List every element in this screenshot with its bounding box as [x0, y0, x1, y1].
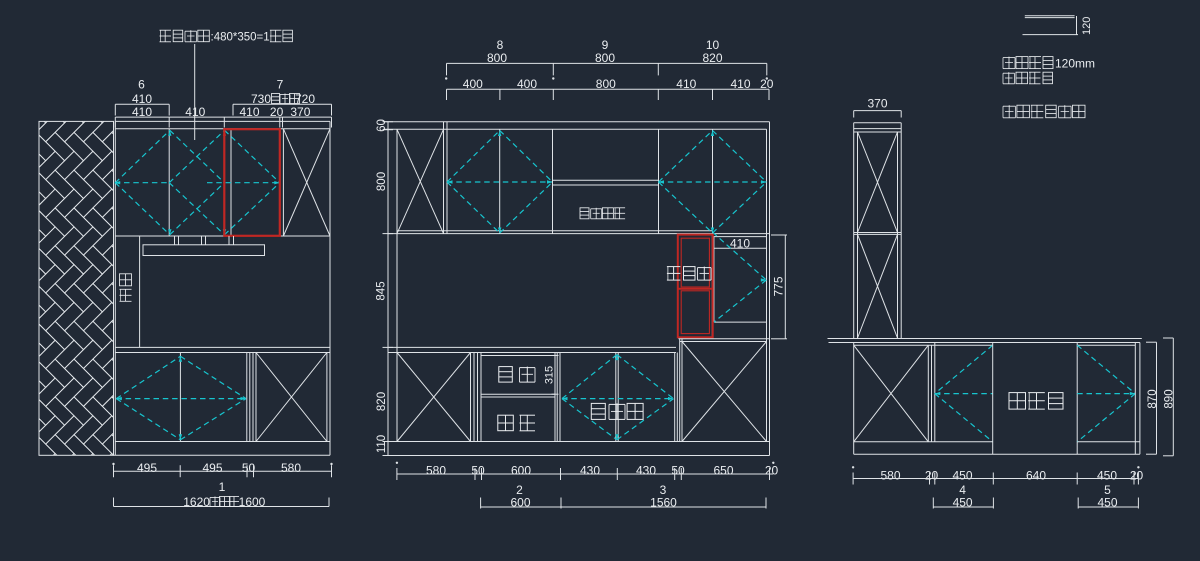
svg-text:600: 600: [511, 463, 531, 477]
svg-text:450: 450: [953, 495, 973, 509]
svg-text:410: 410: [730, 236, 750, 250]
svg-text:1: 1: [219, 480, 226, 494]
svg-text:1620: 1620: [183, 495, 210, 509]
svg-text:800: 800: [487, 51, 507, 65]
svg-text:730: 730: [251, 92, 271, 106]
svg-text:20: 20: [925, 468, 939, 482]
svg-text:450: 450: [1097, 468, 1117, 482]
svg-text:800: 800: [376, 172, 388, 191]
svg-text:450: 450: [1097, 495, 1117, 509]
svg-text:110: 110: [376, 435, 388, 453]
svg-text:775: 775: [771, 276, 785, 296]
svg-text:1600: 1600: [239, 495, 266, 509]
svg-text:410: 410: [132, 92, 152, 106]
svg-text:430: 430: [636, 463, 656, 477]
svg-text:20: 20: [765, 463, 779, 477]
svg-text:495: 495: [202, 461, 222, 475]
svg-text:650: 650: [713, 463, 733, 477]
svg-text:820: 820: [702, 51, 722, 65]
svg-text:20: 20: [1130, 468, 1144, 482]
svg-text:1560: 1560: [650, 495, 677, 509]
svg-text:10: 10: [706, 38, 720, 52]
svg-text:8: 8: [497, 38, 504, 52]
svg-text:315: 315: [544, 366, 556, 384]
svg-text:7: 7: [277, 77, 284, 91]
svg-text:580: 580: [426, 463, 446, 477]
svg-text:450: 450: [952, 468, 972, 482]
svg-text:60: 60: [376, 119, 388, 132]
svg-text:845: 845: [376, 281, 388, 300]
svg-text:720: 720: [295, 92, 315, 106]
svg-text:495: 495: [137, 461, 157, 475]
svg-text:9: 9: [602, 38, 609, 52]
svg-text::480*350=1: :480*350=1: [211, 32, 270, 44]
svg-text:120mm: 120mm: [1055, 56, 1095, 70]
svg-text:50: 50: [671, 463, 685, 477]
svg-text:120: 120: [1081, 17, 1093, 35]
svg-text:6: 6: [138, 77, 145, 91]
svg-text:580: 580: [281, 461, 301, 475]
svg-text:370: 370: [867, 96, 887, 110]
svg-text:640: 640: [1026, 468, 1046, 482]
svg-text:800: 800: [595, 51, 615, 65]
svg-text:870: 870: [1147, 389, 1159, 408]
svg-text:820: 820: [376, 392, 388, 411]
svg-text:50: 50: [471, 463, 485, 477]
svg-text:580: 580: [880, 468, 900, 482]
svg-text:890: 890: [1164, 389, 1176, 408]
svg-text:430: 430: [580, 463, 600, 477]
svg-text:600: 600: [510, 495, 530, 509]
